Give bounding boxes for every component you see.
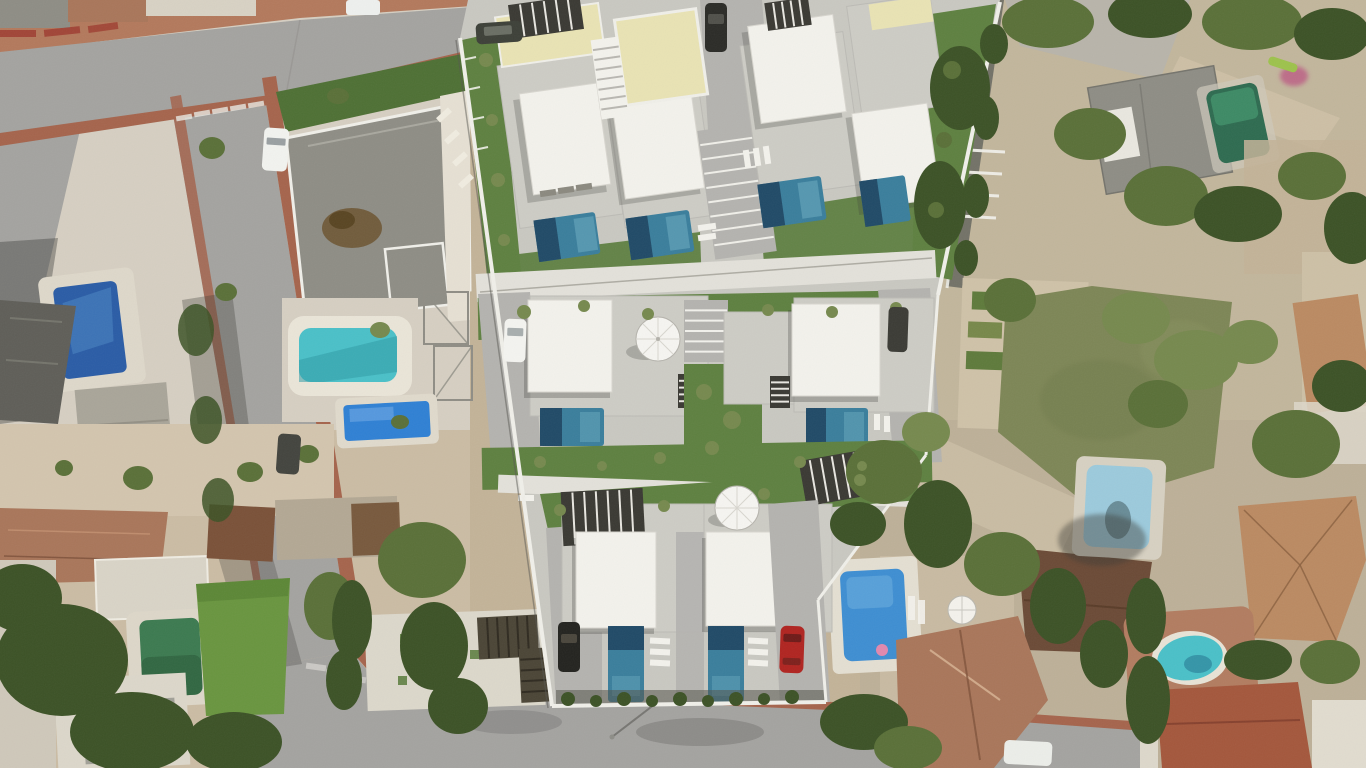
aerial-photo-canvas [0, 0, 1366, 768]
photo-grain-overlay [0, 0, 1366, 768]
aerial-photo: aerial-drone-view-villa-development-with… [0, 0, 1366, 768]
